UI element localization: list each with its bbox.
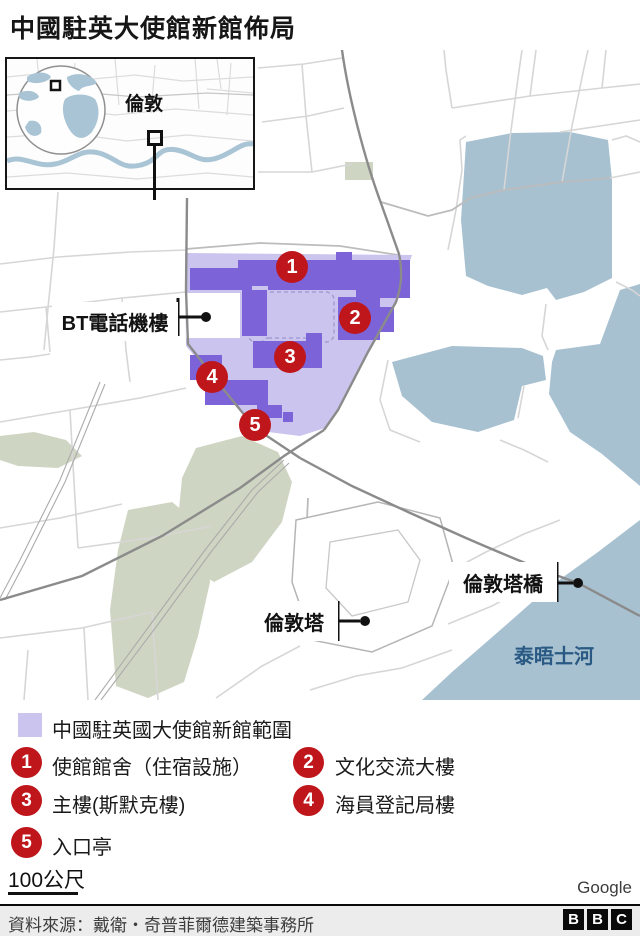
inset-map-canvas — [7, 59, 253, 188]
legend-item-4-label: 海員登記局樓 — [335, 789, 455, 818]
legend-item-3-label: 主樓(斯默克樓) — [52, 789, 185, 818]
bbc-logo: B B C — [563, 909, 632, 930]
inset-location-marker — [147, 130, 163, 146]
label-tower-bridge: 倫敦塔橋 — [449, 562, 557, 602]
legend-item-2-label: 文化交流大樓 — [335, 751, 455, 780]
map-marker-5: 5 — [239, 409, 271, 441]
map-marker-4: 4 — [196, 361, 228, 393]
inset-locator-map: 倫敦 — [5, 57, 255, 190]
bbc-letter-1: B — [563, 909, 584, 930]
bbc-letter-3: C — [611, 909, 632, 930]
legend-marker-5: 5 — [11, 827, 42, 858]
uk-marker-icon — [51, 81, 60, 90]
page-title: 中國駐英大使館新館佈局 — [10, 9, 296, 45]
legend-item-1-label: 使館館舍（住宿設施） — [52, 751, 252, 780]
label-thames-river: 泰晤士河 — [514, 640, 594, 669]
label-tower-of-london: 倫敦塔 — [250, 601, 338, 641]
main-map: 倫敦 BT電話機樓 倫敦塔橋 倫敦塔 泰晤士河 1 2 3 4 5 — [0, 50, 640, 700]
scale-label: 100公尺 — [8, 864, 85, 894]
label-bt-exchange: BT電話機樓 — [52, 302, 178, 341]
legend-marker-2: 2 — [293, 747, 324, 778]
legend-item-5-label: 入口亭 — [52, 831, 112, 860]
globe-icon — [17, 66, 105, 154]
map-marker-3: 3 — [274, 341, 306, 373]
google-attribution: Google — [577, 878, 632, 898]
source-text: 資料來源：戴衛・奇普菲爾德建築事務所 — [8, 911, 314, 936]
bbc-letter-2: B — [587, 909, 608, 930]
scale-bar — [8, 892, 78, 895]
inset-leader-line — [153, 146, 156, 200]
map-marker-2: 2 — [339, 302, 371, 334]
legend-area-label: 中國駐英國大使館新館範圍 — [52, 714, 292, 743]
legend-marker-1: 1 — [11, 747, 42, 778]
legend-marker-3: 3 — [11, 785, 42, 816]
legend-area-swatch — [18, 713, 42, 737]
inset-city-label: 倫敦 — [125, 89, 163, 116]
legend-marker-4: 4 — [293, 785, 324, 816]
thames-river-shape — [422, 520, 640, 700]
map-marker-1: 1 — [276, 251, 308, 283]
